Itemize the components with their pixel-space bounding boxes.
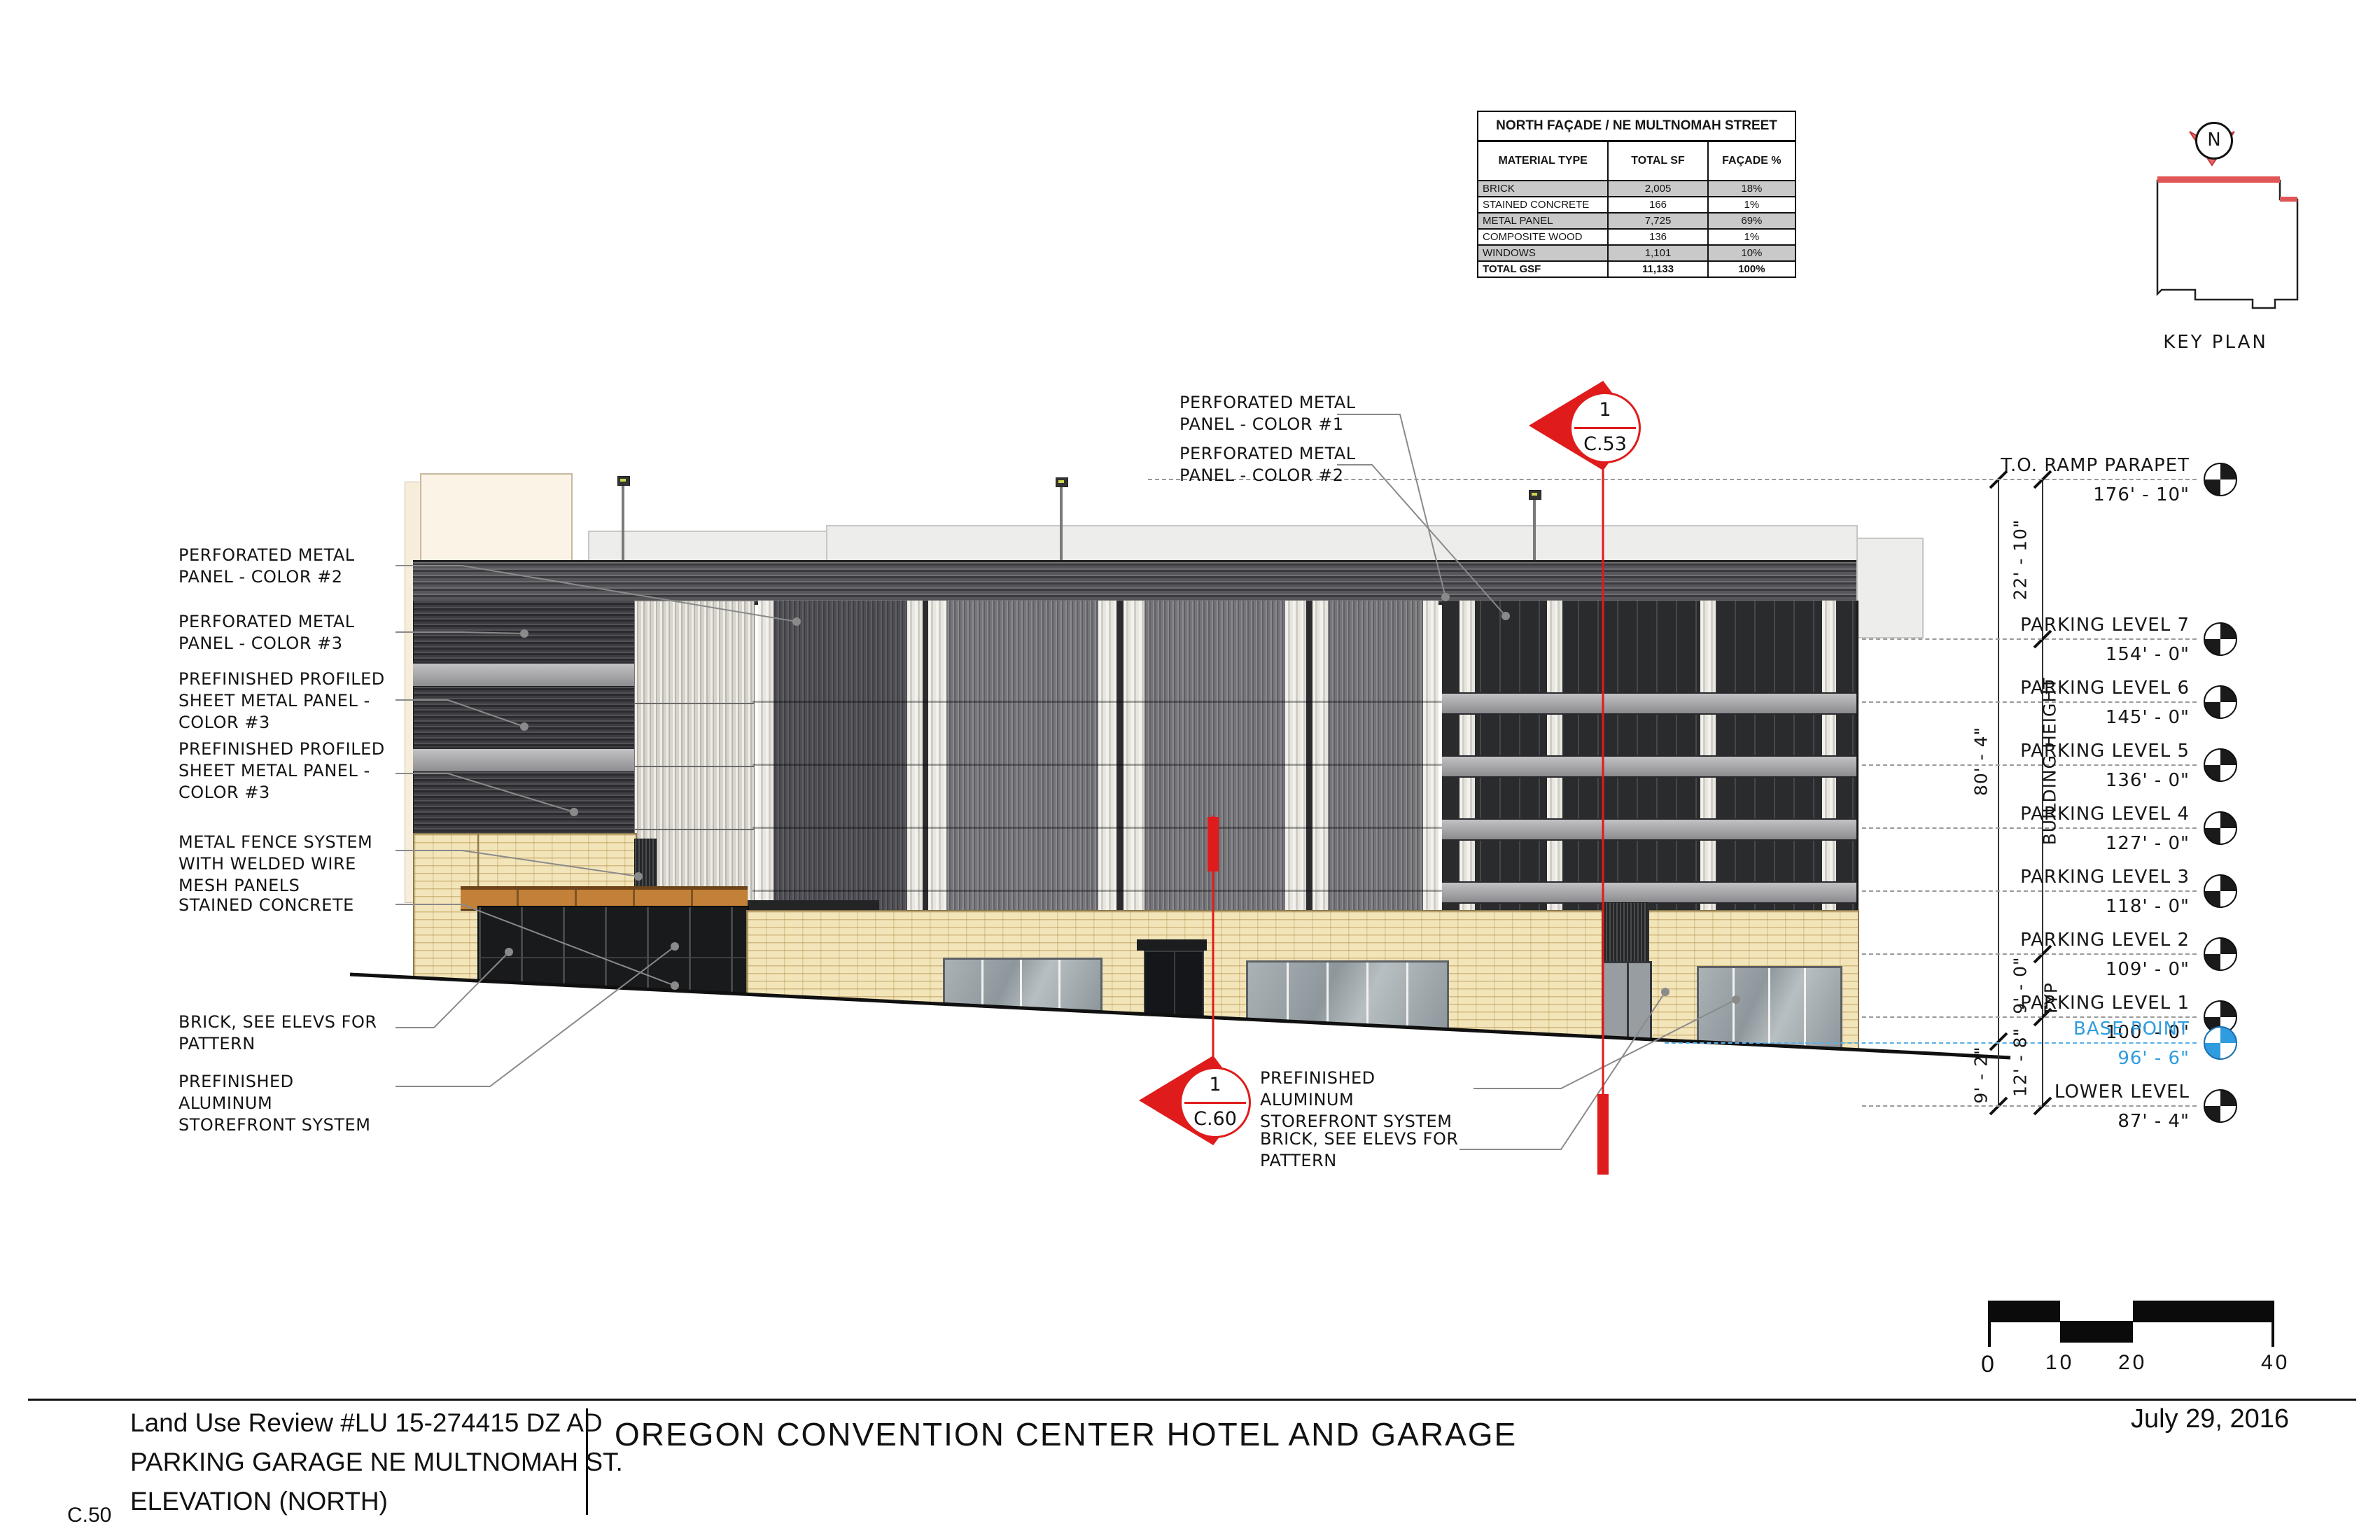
project-title: OREGON CONVENTION CENTER HOTEL AND GARAG…: [615, 1415, 1517, 1453]
cell-total-pct: 100%: [1708, 261, 1795, 277]
dim-building-height-value: 80' - 4": [1971, 685, 1991, 839]
level-elevation: 136' - 0": [2106, 770, 2190, 791]
table-row: STAINED CONCRETE 166 1%: [1478, 197, 1795, 213]
key-plan-graphic: [2157, 132, 2297, 308]
level-line: [1862, 764, 2197, 766]
review-subtitle: PARKING GARAGE NE MULTNOMAH ST.: [130, 1448, 623, 1477]
annotation-storefront-bottom: PREFINISHED ALUMINUM STOREFRONT SYSTEM: [1260, 1067, 1470, 1133]
level-line: [1665, 1042, 2197, 1044]
table-row: BRICK 2,005 18%: [1478, 181, 1795, 197]
scale-midline: [1988, 1321, 2274, 1322]
cell-sf: 136: [1608, 229, 1707, 245]
dim-parapet-to-l7: 22' - 10": [2010, 483, 2031, 637]
dim-building-height-label: BUILDING HEIGHT: [2040, 650, 2060, 874]
dim-typ-label: TYP: [2041, 923, 2061, 1077]
level-elevation: 127' - 0": [2106, 833, 2190, 854]
cell-sf: 2,005: [1608, 181, 1707, 197]
level-marker-icon: [2204, 1089, 2237, 1123]
level-line: [1862, 890, 2197, 892]
cell-material: STAINED CONCRETE: [1478, 197, 1608, 213]
cell-total-sf: 11,133: [1608, 261, 1707, 277]
table-row: COMPOSITE WOOD 136 1%: [1478, 229, 1795, 245]
cell-sf: 166: [1608, 197, 1707, 213]
annotation-metal-fence: METAL FENCE SYSTEM WITH WELDED WIRE MESH…: [178, 832, 409, 897]
level-line: [1862, 827, 2197, 829]
cell-sf: 7,725: [1608, 213, 1707, 229]
key-plan-north-facade-highlight: [2280, 197, 2297, 202]
leader-dots: [505, 593, 1740, 1004]
level-elevation: 87' - 4": [2117, 1111, 2190, 1132]
cell-material: COMPOSITE WOOD: [1478, 229, 1608, 245]
cell-pct: 1%: [1708, 229, 1795, 245]
section-number: 1: [1182, 1074, 1249, 1095]
section-marker-divider: [1184, 1102, 1246, 1104]
cell-material: METAL PANEL: [1478, 213, 1608, 229]
section-sheet-ref: C.53: [1571, 433, 1639, 455]
annotation-brick-bottom: BRICK, SEE ELEVS FOR PATTERN: [1260, 1128, 1470, 1172]
sheet-date: July 29, 2016: [2009, 1404, 2289, 1434]
level-marker-icon: [2204, 463, 2237, 496]
level-name: PARKING LEVEL 7: [2020, 615, 2190, 636]
level-elevation: 109' - 0": [2106, 959, 2190, 980]
level-elevation: 154' - 0": [2106, 644, 2190, 665]
cell-pct: 10%: [1708, 245, 1795, 261]
level-name: LOWER LEVEL: [2054, 1081, 2190, 1102]
level-marker-icon: [2204, 937, 2237, 971]
section-marker-circle: 1 C.60: [1179, 1067, 1251, 1138]
annotation-perf-metal-color1-top: PERFORATED METAL PANEL - COLOR #1: [1179, 392, 1361, 435]
scale-segment: [1988, 1301, 2060, 1322]
graphic-scale-bar: 0 10 20 40: [1988, 1301, 2275, 1392]
section-sheet-ref: C.60: [1182, 1108, 1249, 1130]
level-elevation: 96' - 6": [2117, 1048, 2190, 1069]
scale-label: 40: [2261, 1351, 2290, 1375]
sheet-number: C.50: [67, 1504, 111, 1527]
cell-total-label: TOTAL GSF: [1478, 261, 1608, 277]
level-marker-icon: [2204, 874, 2237, 908]
level-line: [1862, 638, 2197, 640]
cell-sf: 1,101: [1608, 245, 1707, 261]
col-total-sf: TOTAL SF: [1608, 141, 1707, 181]
scale-label: 10: [2045, 1351, 2074, 1375]
level-marker-icon: [2204, 811, 2237, 845]
level-marker-icon: [2204, 1026, 2237, 1060]
scale-label: 0: [1981, 1351, 1997, 1378]
table-row: METAL PANEL 7,725 69%: [1478, 213, 1795, 229]
review-number: Land Use Review #LU 15-274415 DZ AD: [130, 1408, 603, 1438]
titleblock-rule: [28, 1399, 2356, 1401]
level-marker-icon: [2204, 685, 2237, 719]
annotation-profiled-sheet-metal-2: PREFINISHED PROFILED SHEET METAL PANEL -…: [178, 738, 409, 804]
table-title: NORTH FAÇADE / NE MULTNOMAH STREET: [1478, 111, 1795, 141]
scale-tick: [1988, 1301, 1991, 1347]
annotation-perf-metal-color2: PERFORATED METAL PANEL - COLOR #2: [178, 545, 409, 588]
annotation-perf-metal-color3: PERFORATED METAL PANEL - COLOR #3: [178, 611, 409, 654]
annotation-profiled-sheet-metal-1: PREFINISHED PROFILED SHEET METAL PANEL -…: [178, 668, 409, 734]
table-total-row: TOTAL GSF 11,133 100%: [1478, 261, 1795, 277]
scale-label: 20: [2118, 1351, 2147, 1375]
cell-pct: 1%: [1708, 197, 1795, 213]
level-elevation: 176' - 10": [2093, 484, 2190, 505]
level-elevation: 118' - 0": [2106, 896, 2190, 917]
level-marker-icon: [2204, 748, 2237, 782]
cell-pct: 69%: [1708, 213, 1795, 229]
materials-table: NORTH FAÇADE / NE MULTNOMAH STREET MATER…: [1477, 111, 1796, 278]
cell-material: WINDOWS: [1478, 245, 1608, 261]
col-material-type: MATERIAL TYPE: [1478, 141, 1608, 181]
annotation-brick-left: BRICK, SEE ELEVS FOR PATTERN: [178, 1011, 388, 1055]
dim-base-to-lower: 9' - 2": [1971, 998, 1991, 1152]
level-name: T.O. RAMP PARAPET: [2001, 455, 2190, 476]
dim-l1-to-lower: 12' - 8": [2010, 986, 2031, 1140]
col-facade-pct: FAÇADE %: [1708, 141, 1795, 181]
annotation-stained-concrete: STAINED CONCRETE: [178, 895, 409, 916]
level-name: BASE POINT: [2073, 1018, 2190, 1039]
section-marker-divider: [1574, 427, 1636, 429]
annotation-perf-metal-color2-top: PERFORATED METAL PANEL - COLOR #2: [1179, 443, 1361, 486]
cell-pct: 18%: [1708, 181, 1795, 197]
level-elevation: 145' - 0": [2106, 707, 2190, 728]
annotation-storefront-left: PREFINISHED ALUMINUM STOREFRONT SYSTEM: [178, 1071, 388, 1136]
section-number: 1: [1571, 399, 1639, 421]
scale-segment: [2133, 1301, 2274, 1322]
key-plan-label: KEY PLAN: [2142, 332, 2289, 353]
key-plan-north-facade-highlight: [2157, 176, 2280, 183]
level-line: [1862, 701, 2197, 703]
scale-tick: [2271, 1301, 2274, 1347]
north-indicator: N: [2195, 122, 2233, 160]
table-row: WINDOWS 1,101 10%: [1478, 245, 1795, 261]
drawing-sheet: T.O. RAMP PARAPET 176' - 10" PARKING LEV…: [0, 0, 2380, 1540]
scale-segment: [2060, 1322, 2133, 1343]
level-marker-icon: [2204, 622, 2237, 656]
section-marker-circle: 1 C.53: [1569, 392, 1641, 463]
cell-material: BRICK: [1478, 181, 1608, 197]
review-view: ELEVATION (NORTH): [130, 1487, 388, 1516]
